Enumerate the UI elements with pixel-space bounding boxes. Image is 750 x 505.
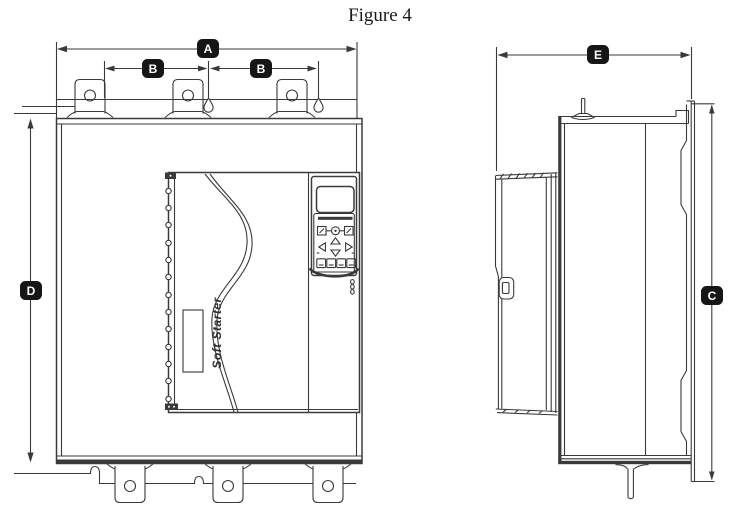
side-bottom-pin	[616, 465, 649, 499]
dimension-label-e: E	[588, 46, 608, 63]
dimension-label-c: C	[702, 287, 722, 304]
side-back-plate	[681, 101, 695, 482]
dimension-label-a: A	[198, 40, 218, 57]
dimension-label-b-left: B	[143, 60, 163, 77]
door-latch	[499, 278, 514, 300]
soft-starter-label: Soft Starter	[210, 292, 224, 374]
side-view-drawing	[496, 47, 715, 499]
bottom-mounting-bracket	[30, 467, 356, 484]
bottom-mounting-tabs	[107, 464, 351, 503]
dimension-label-b-right: B	[251, 60, 271, 77]
side-body	[558, 111, 691, 465]
front-view-drawing	[14, 42, 362, 503]
dimension-e-arrow	[497, 47, 692, 171]
dimension-label-d: D	[21, 282, 41, 299]
figure-title: Figure 4	[310, 5, 450, 27]
front-door	[165, 173, 360, 413]
keyhole-marks	[204, 98, 323, 112]
side-door	[496, 173, 558, 415]
figure-canvas: Figure 4 A B B D E C Soft Starter	[0, 0, 750, 505]
figure-line-art	[0, 0, 750, 505]
